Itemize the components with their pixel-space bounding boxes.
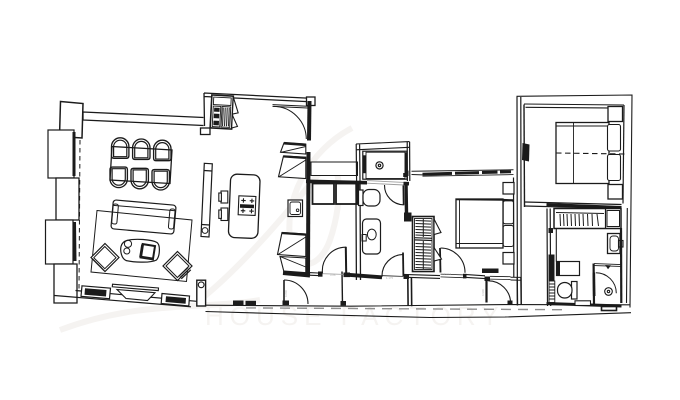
svg-text:0.800: 0.800 (284, 290, 288, 297)
svg-text:0.88: 0.88 (330, 273, 336, 277)
svg-text:0.900: 0.900 (481, 289, 485, 296)
svg-text:1.175: 1.175 (386, 276, 393, 280)
svg-text:2.010: 2.010 (444, 272, 451, 276)
